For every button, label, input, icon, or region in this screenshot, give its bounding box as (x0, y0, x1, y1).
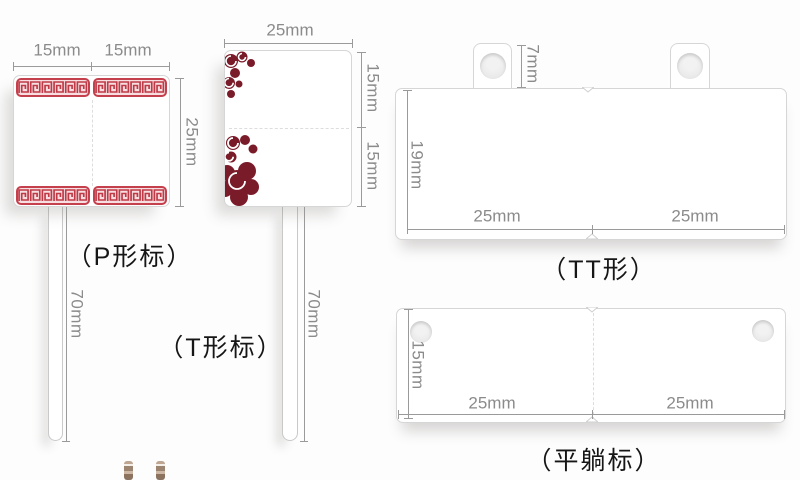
meander-pattern-icon (93, 186, 167, 205)
meander-pattern-icon (93, 78, 167, 97)
dimension-tick (784, 410, 785, 419)
dimension-tick (175, 78, 184, 79)
t-tag-width-dimension-line (224, 43, 353, 44)
dimension-tick (592, 225, 593, 234)
punch-hole (752, 320, 774, 342)
tt-tag-height-label: 19mm (409, 140, 426, 189)
flat-tag-width-right-label: 25mm (666, 395, 713, 412)
pin-fastener (124, 461, 133, 480)
product-spec-diagram: 15mm 15mm 25mm 70mm （P形标） 25mm (0, 0, 800, 480)
floral-ornament-icon (225, 51, 263, 99)
t-tag-height-bottom-label: 15mm (365, 141, 382, 190)
p-tag-height-dimension-line (180, 78, 181, 206)
dimension-tick (407, 225, 408, 234)
dimension-tick (169, 62, 170, 71)
flat-tag-body (396, 308, 786, 423)
dimension-tick (91, 62, 92, 71)
p-tag-height-label: 25mm (184, 117, 201, 166)
split-notch (582, 87, 594, 93)
dimension-tick (300, 441, 308, 442)
tt-tag-width-dimension-line (407, 229, 785, 230)
punch-hole (677, 53, 703, 79)
dimension-tick (175, 206, 184, 207)
flat-tag-fold-line (593, 313, 594, 420)
punch-hole (480, 53, 506, 79)
tt-tag-width-right-label: 25mm (671, 208, 718, 225)
p-tag-width-left-label: 15mm (33, 42, 80, 59)
meander-pattern-icon (16, 78, 90, 97)
tt-tag-tab-height-label: 7mm (525, 44, 542, 83)
p-tag-body (13, 75, 170, 207)
t-tag-height-top-label: 15mm (365, 63, 382, 112)
pin-fastener (156, 461, 165, 480)
p-tag-stem-label: 70mm (69, 289, 86, 338)
dimension-tick (398, 410, 399, 419)
flat-tag-height-label: 15mm (410, 340, 427, 389)
dimension-tick (224, 39, 225, 48)
flat-tag-name-label: （平躺标） (526, 446, 661, 476)
dimension-tick (404, 418, 413, 419)
p-tag-fold-line (92, 100, 93, 186)
dimension-tick (357, 52, 366, 53)
dimension-tick (13, 62, 14, 71)
dimension-tick (62, 441, 70, 442)
tt-tag-body (395, 88, 787, 240)
tt-tag-name-label: （TT形） (541, 255, 657, 285)
t-tag-height-dimension-line (361, 52, 362, 206)
dimension-tick (404, 309, 413, 310)
dimension-tick (357, 127, 366, 128)
dimension-tick (357, 206, 366, 207)
t-tag-body (224, 50, 352, 207)
meander-pattern-icon (16, 186, 90, 205)
dimension-tick (784, 225, 785, 234)
p-tag-width-right-label: 15mm (104, 42, 151, 59)
floral-ornament-icon (225, 133, 269, 207)
tt-tag-tab-dimension-line (521, 45, 522, 88)
p-tag-stem (48, 206, 63, 441)
dimension-tick (352, 39, 353, 48)
t-tag-stem-label: 70mm (306, 289, 323, 338)
t-tag-fold-line (229, 128, 349, 129)
p-tag-name-label: （P形标） (67, 242, 194, 272)
t-tag-stem (282, 206, 298, 441)
t-tag-width-label: 25mm (266, 22, 313, 39)
flat-tag-width-left-label: 25mm (468, 395, 515, 412)
tt-tag-width-left-label: 25mm (473, 208, 520, 225)
dimension-tick (592, 410, 593, 419)
t-tag-name-label: （T形标） (158, 333, 283, 363)
dimension-tick (403, 90, 412, 91)
split-notch (586, 307, 598, 313)
